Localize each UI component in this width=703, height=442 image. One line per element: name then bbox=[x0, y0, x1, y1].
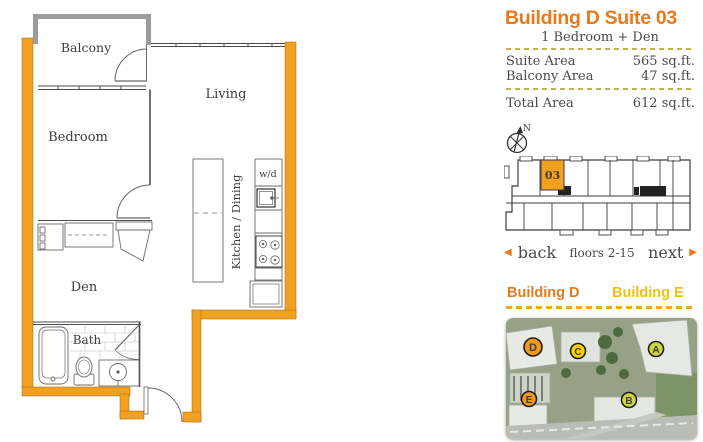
floorplan-sheet: { "suite_info": { "title": "Building D S… bbox=[0, 0, 703, 442]
keyplan-core bbox=[640, 186, 666, 196]
kitchen-island bbox=[193, 159, 223, 282]
area-row: Suite Area 565 sq.ft. bbox=[506, 55, 695, 69]
room-label-den: Den bbox=[71, 280, 98, 295]
area-value: 565 sq.ft. bbox=[633, 55, 695, 69]
closet-fixtures bbox=[38, 222, 152, 261]
suite-subtitle: 1 Bedroom + Den bbox=[505, 30, 695, 45]
room-label-bedroom: Bedroom bbox=[48, 130, 108, 145]
area-label: Balcony Area bbox=[506, 70, 593, 84]
svg-text:A: A bbox=[652, 345, 659, 356]
back-button[interactable]: back bbox=[518, 243, 556, 262]
site-marker-b[interactable]: B bbox=[622, 393, 637, 408]
room-label-kitchen: Kitchen / Dining bbox=[229, 174, 243, 270]
svg-text:B: B bbox=[625, 396, 632, 407]
site-marker-e[interactable]: E bbox=[522, 392, 537, 407]
area-label: Suite Area bbox=[506, 55, 576, 69]
site-map-photo: D C A E B bbox=[506, 318, 697, 439]
divider bbox=[506, 88, 695, 90]
building-divider bbox=[506, 306, 696, 309]
room-label-wd: w/d bbox=[259, 169, 276, 180]
area-row: Balcony Area 47 sq.ft. bbox=[506, 70, 695, 84]
total-area-row: Total Area 612 sq.ft. bbox=[506, 97, 695, 111]
floors-label: floors 2-15 bbox=[570, 246, 635, 260]
room-label-living: Living bbox=[206, 87, 247, 102]
floor-pager: ◀ back floors 2-15 next ▶ bbox=[504, 243, 697, 262]
area-value: 47 sq.ft. bbox=[641, 70, 695, 84]
room-label-bath: Bath bbox=[73, 333, 102, 347]
total-area-label: Total Area bbox=[506, 97, 574, 111]
next-button[interactable]: next bbox=[648, 243, 683, 262]
keyplan-core bbox=[634, 187, 639, 195]
site-marker-a[interactable]: A bbox=[649, 342, 664, 357]
site-marker-d[interactable]: D bbox=[524, 338, 542, 356]
room-label-balcony: Balcony bbox=[61, 40, 112, 55]
page-title: Building D Suite 03 bbox=[505, 7, 699, 30]
building-e-tab[interactable]: Building E bbox=[612, 285, 684, 301]
floor-plan: Balcony Living Bedroom Den Bath w/d Kitc… bbox=[0, 0, 470, 442]
divider bbox=[506, 48, 695, 50]
svg-text:C: C bbox=[574, 347, 581, 358]
next-arrow-icon: ▶ bbox=[689, 247, 697, 258]
svg-text:E: E bbox=[526, 395, 533, 406]
site-marker-c[interactable]: C bbox=[571, 344, 586, 359]
building-d-tab[interactable]: Building D bbox=[507, 285, 580, 301]
compass-north-label: N bbox=[523, 124, 531, 134]
back-arrow-icon: ◀ bbox=[504, 247, 512, 258]
compass-icon: N bbox=[504, 122, 540, 158]
total-area-value: 612 sq.ft. bbox=[633, 97, 695, 111]
keyplan-suite-03[interactable]: 03 bbox=[541, 160, 564, 190]
interior-walls bbox=[33, 44, 285, 388]
keyplan-suite-number: 03 bbox=[545, 169, 560, 182]
keyplan: 03 bbox=[504, 156, 696, 238]
svg-text:D: D bbox=[529, 342, 537, 354]
